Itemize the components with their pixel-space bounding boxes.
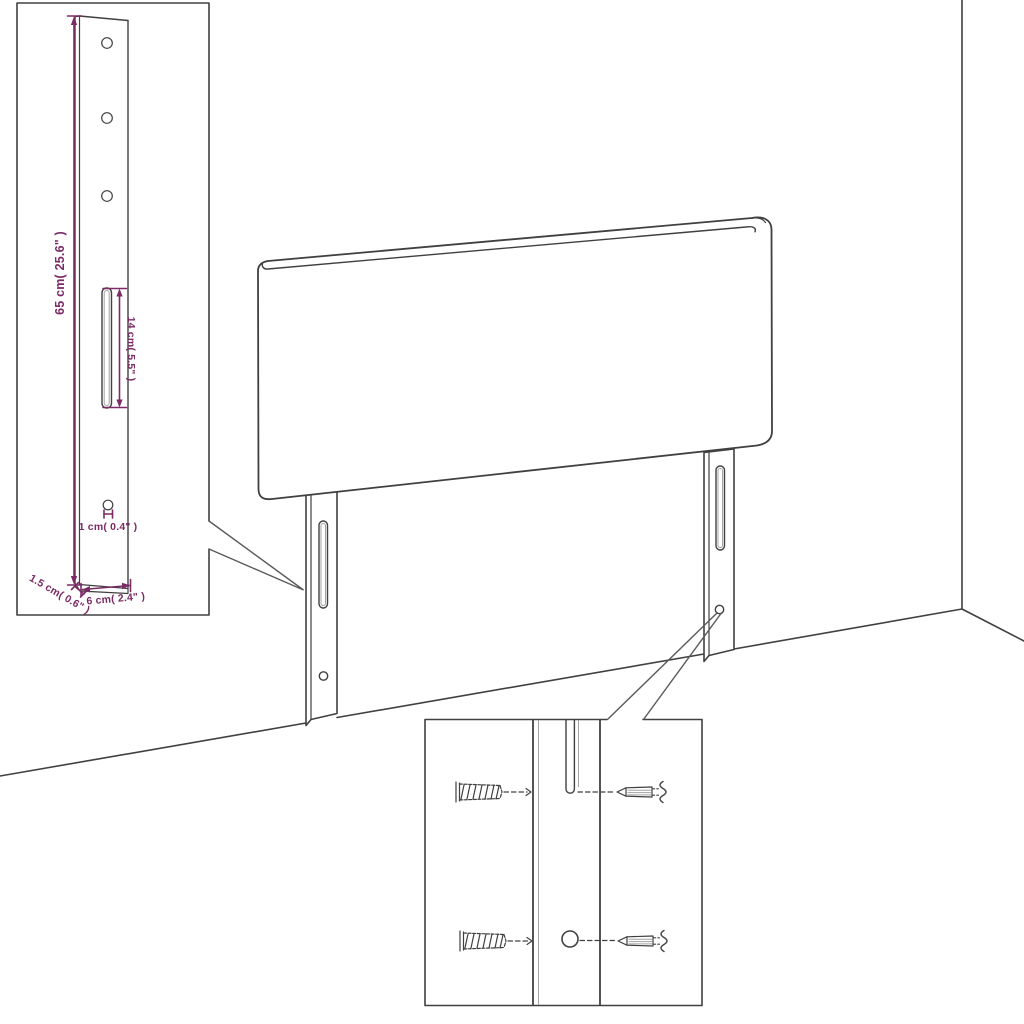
dim14-arrow-up (116, 289, 122, 297)
inset2-callout-line-right (644, 614, 722, 720)
floor-line-left (0, 723, 306, 776)
dim14-arrow-down (116, 400, 122, 408)
closeup-hole (562, 931, 578, 947)
headboard-left-leg (306, 492, 337, 726)
bracket-small-hole (103, 500, 113, 510)
headboard-panel (258, 217, 772, 499)
headboard-outline (258, 217, 772, 499)
dimension-leg-thickness: 1.5 cm( 0.6" ) (27, 572, 92, 616)
diagram-page: 65 cm( 25.6" ) 14 cm( 5.5" ) 1 cm( 0.4" … (0, 0, 1024, 1024)
leg-closeup (533, 720, 600, 1005)
bracket-hole-middle (102, 113, 113, 124)
floor-line-right (734, 609, 1024, 649)
wall-plug-icon (460, 931, 506, 951)
left-leg-hole (319, 672, 327, 680)
dim6-label: 6 cm( 2.4" ) (86, 590, 146, 607)
screw-icon (617, 782, 666, 803)
left-leg-slot (319, 521, 328, 608)
mounting-inset-frame (425, 720, 702, 1006)
inset2-callout-line-left (608, 613, 718, 720)
dim15-line (76, 587, 85, 594)
dim65-arrow-up (71, 17, 77, 26)
bracket-hole-top (102, 38, 113, 49)
bracket-slot (102, 288, 112, 408)
mounting-detail-inset (425, 613, 721, 1006)
mounting-row-top (456, 782, 666, 803)
dimension-leg-width: 6 cm( 2.4" ) (81, 580, 146, 608)
dim65-label: 65 cm( 25.6" ) (53, 231, 67, 315)
screw-icon (618, 931, 667, 952)
dim1-label: 1 cm( 0.4" ) (79, 521, 138, 533)
dimension-leg-height: 65 cm( 25.6" ) (53, 16, 82, 585)
wall-plug-icon (456, 782, 502, 802)
dim14-label: 14 cm( 5.5" ) (125, 317, 137, 382)
floor-line-mid (337, 654, 704, 718)
bracket-hole-lower (102, 191, 113, 202)
dim65-arrow-down (71, 576, 77, 585)
closeup-slot (566, 720, 574, 793)
diagram-canvas: 65 cm( 25.6" ) 14 cm( 5.5" ) 1 cm( 0.4" … (0, 0, 1024, 1024)
bracket-top-edge (75, 16, 128, 21)
right-leg-slot (716, 466, 725, 550)
